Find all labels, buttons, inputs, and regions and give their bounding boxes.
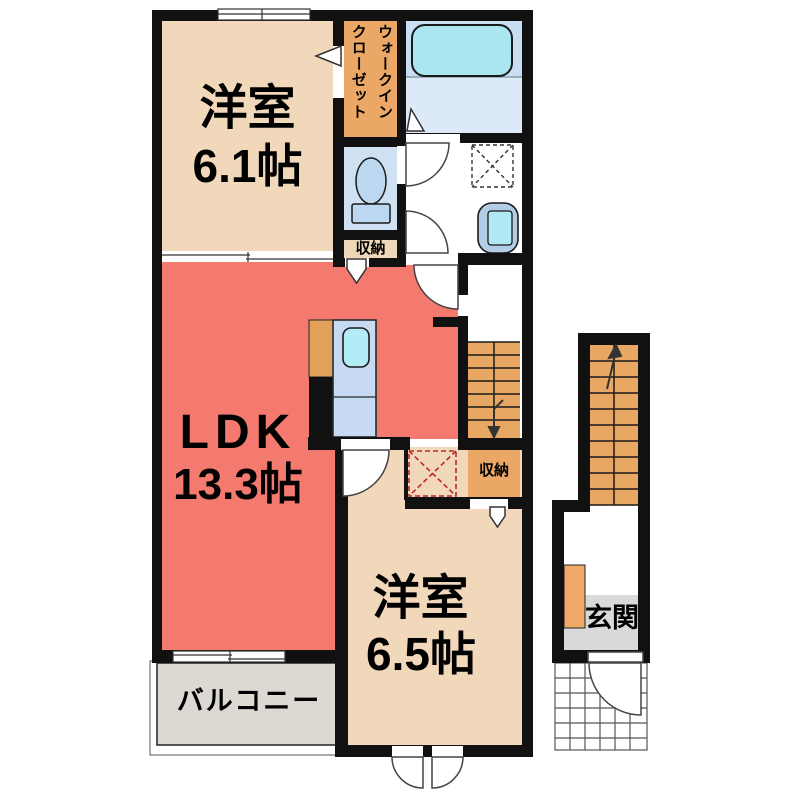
sliding-partition-bedroom1-ldk	[162, 251, 333, 262]
room-fills	[150, 16, 638, 755]
window-top	[218, 9, 310, 20]
walk-in-closet-floor	[344, 21, 397, 137]
storage-stairs-floor	[468, 450, 520, 497]
floor-plan: 洋室 6.1帖 ウォークイン クローゼット 収納 LDK 13.3帖 洋室 6.…	[0, 0, 800, 800]
bathroom-floor-lower	[406, 77, 522, 134]
balcony-floor	[157, 663, 337, 745]
toilet-door-arc	[406, 143, 449, 186]
kitchen-counter	[309, 320, 376, 447]
storage-hall-floor	[344, 240, 397, 258]
shoe-cabinet	[564, 565, 585, 628]
washbasin-icon	[478, 203, 518, 253]
sink-icon	[343, 328, 369, 367]
bathtub-icon	[406, 25, 522, 77]
washing-machine-space	[472, 145, 513, 187]
bedroom2-french-door-right	[432, 757, 463, 788]
window-balcony	[173, 651, 285, 662]
entrance-door-leaf	[588, 652, 643, 662]
bedroom1-floor	[162, 21, 333, 252]
bedroom2-french-door-left	[392, 757, 423, 788]
ldk-floor-left	[158, 262, 335, 652]
washroom-door-arc	[406, 211, 448, 253]
floor-plan-drawing	[0, 0, 800, 800]
